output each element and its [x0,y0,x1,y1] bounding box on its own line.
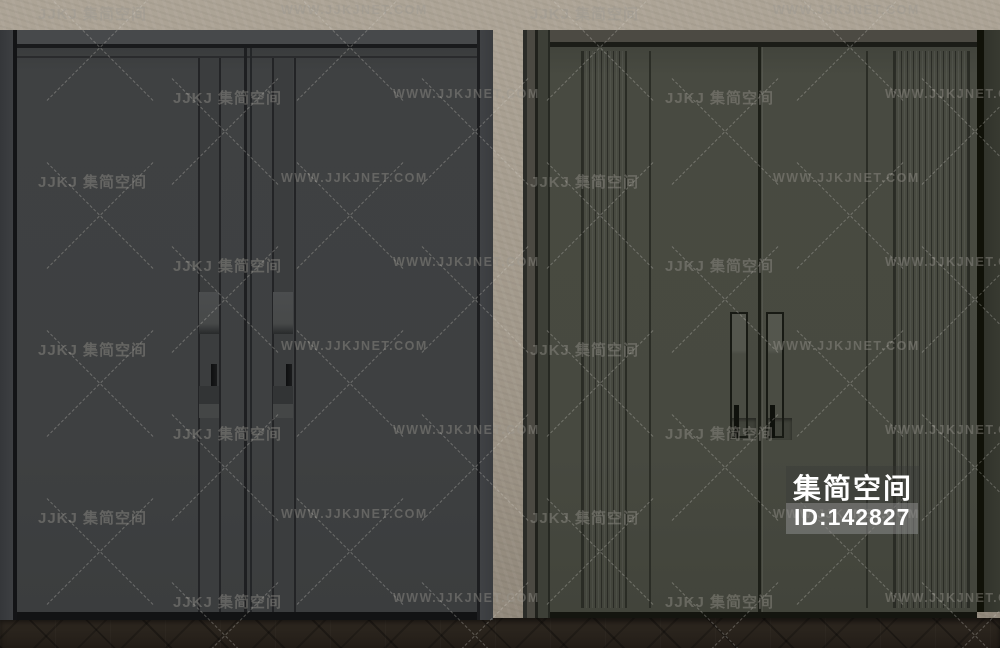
right-leaf-groove-outer [294,58,296,612]
left-leaf-fluted-panel [581,51,627,608]
left-door-unit [0,30,493,620]
right-door-left-jamb [527,30,535,618]
watermark-brand-text: JJKJ 集简空间 [38,3,147,24]
left-door-center-stile [244,48,247,612]
wood-floor [0,618,1000,648]
left-door-slab [17,48,477,612]
right-leaf-handle-cavity-bottom [273,404,293,418]
right-door-left-jamb-inner [538,30,548,618]
left-leaf-groove-inner [219,58,221,612]
left-leaf-handle-channel [199,58,219,612]
left-leaf-groove [649,51,651,608]
right-door-top-frame [525,30,979,42]
left-door-right-jamb [480,30,493,620]
left-door-center-stile-line [250,48,252,612]
right-door-center-stile [758,47,761,612]
watermark-brand-text: JJKJ 集简空间 [530,3,639,24]
product-render-screenshot: JJKJ 集简空间WWW.JJKJNET.COMJJKJ 集简空间WWW.JJK… [0,0,1000,648]
left-leaf-groove-outer [198,58,200,612]
watermark-site-text: WWW.JJKJNET.COM [773,3,920,17]
left-leaf-handle-cavity-bottom [199,404,219,418]
id-badge: ID:142827 [786,503,918,534]
right-leaf-groove-inner [272,58,274,612]
right-door-center-stile-highlight [762,47,763,612]
right-pull-grip [770,405,775,438]
left-door-bottom-gap [17,612,477,620]
watermark-site-text: WWW.JJKJNET.COM [281,3,428,17]
left-door-top-frame [0,30,493,44]
right-door-right-jamb [984,30,1000,612]
right-leaf-handle-cavity-mid [273,386,293,404]
left-leaf-handle-cavity-top [199,292,219,334]
right-door-bottom-gap [550,612,977,618]
left-leaf-handle-cavity-mid [199,386,219,404]
right-leaf-handle-cavity-top [273,292,293,334]
left-door-top-shadow-line [17,56,477,58]
right-door-pull-handle [766,312,784,438]
left-door-pull-handle [730,312,748,438]
right-leaf-handle-channel [273,58,293,612]
left-pull-grip [734,405,739,438]
right-door-unit [523,30,1000,618]
right-door-right-gap [977,30,984,612]
left-door-left-jamb [0,30,13,620]
